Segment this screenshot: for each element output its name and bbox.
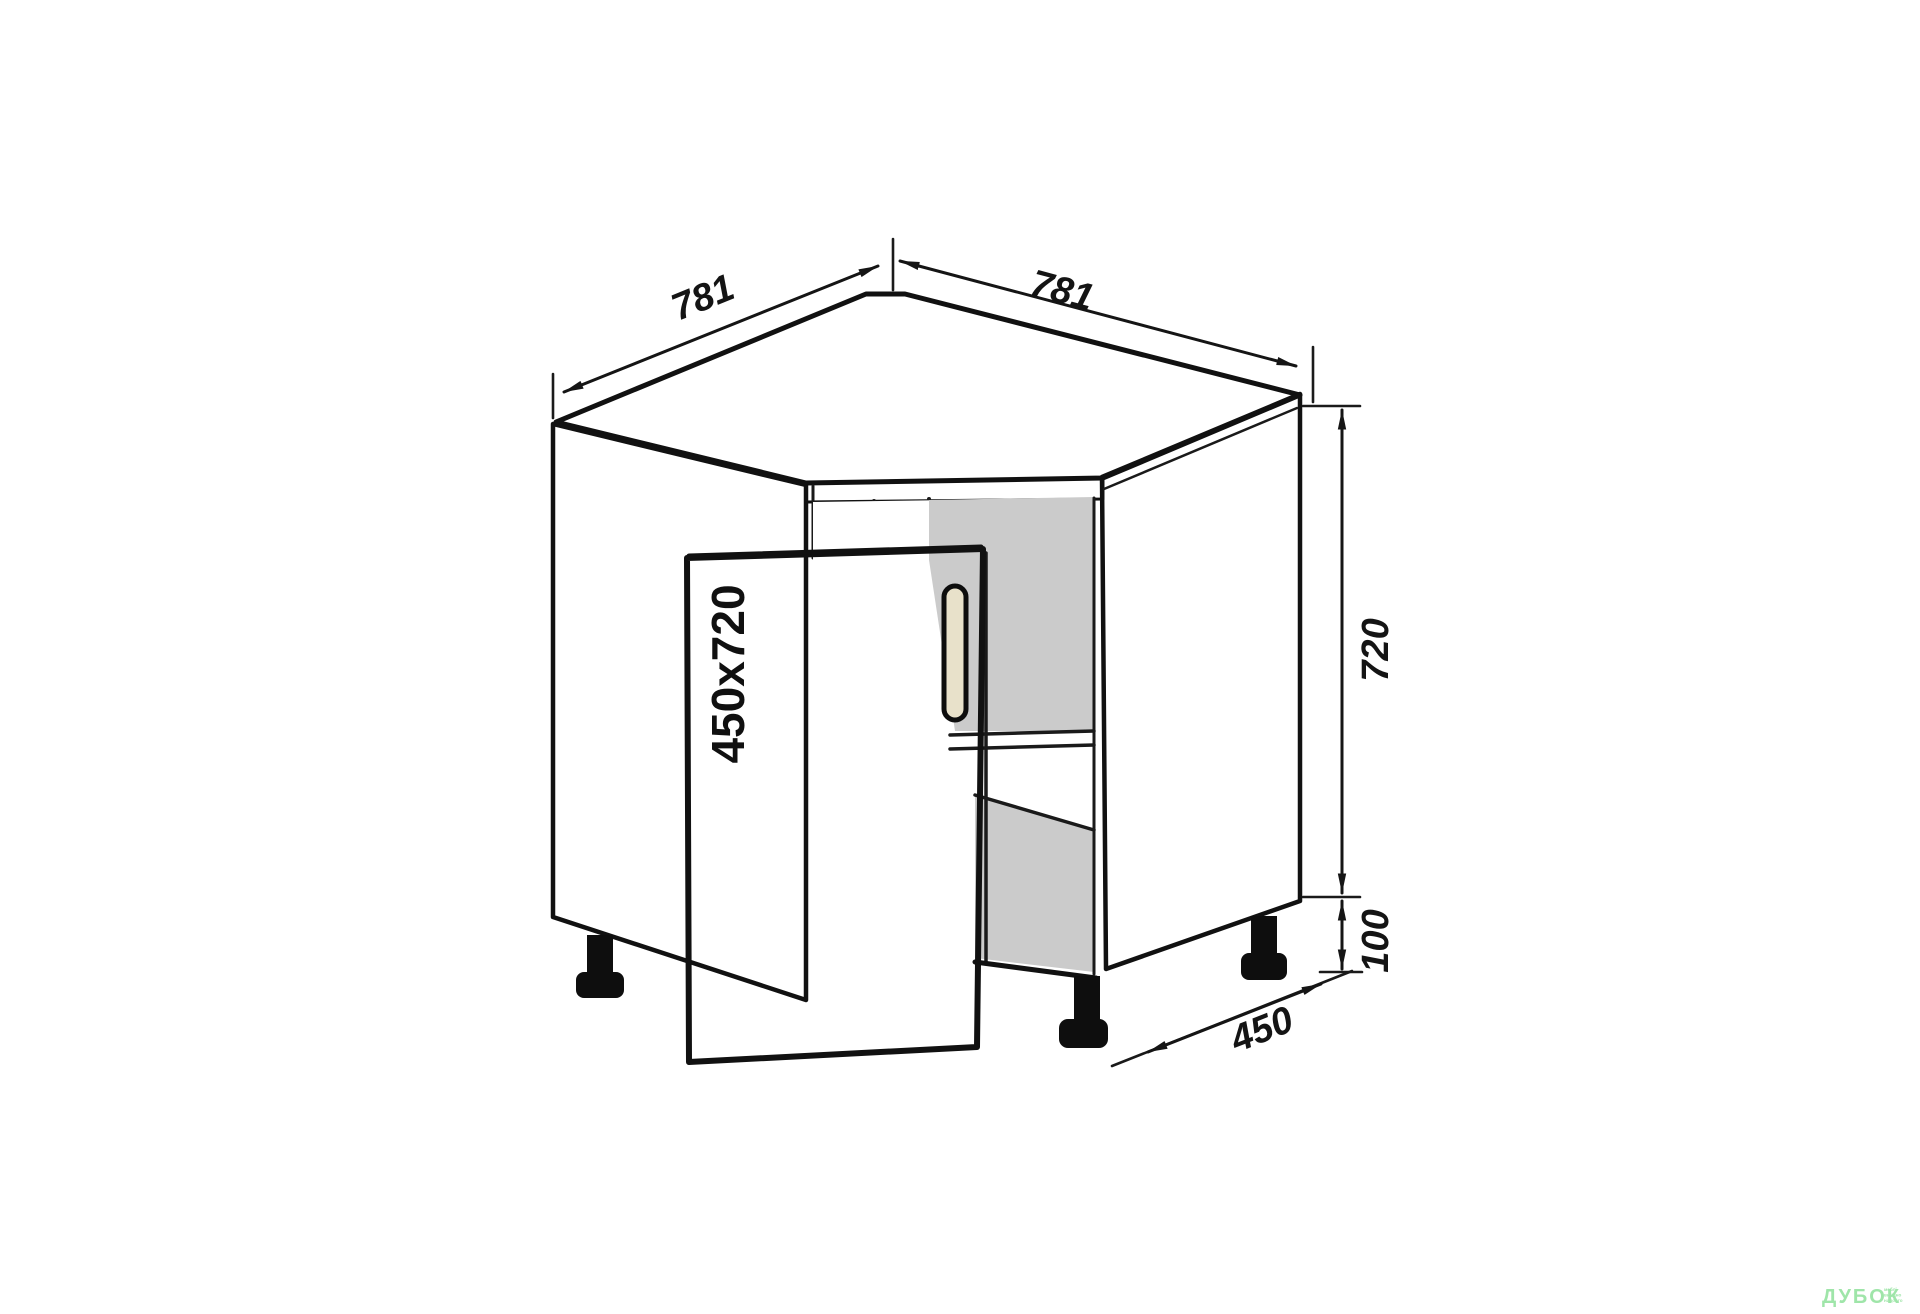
right-leg-foot	[1241, 953, 1287, 980]
watermark: ДУБОК меблі вигідно надовго	[1822, 1286, 1903, 1308]
dim-label-top-right-781: 781	[1026, 263, 1098, 320]
door-handle	[944, 586, 966, 720]
right-panel-top-inner-line	[1104, 408, 1297, 489]
left-leg-foot	[576, 972, 624, 998]
cabinet-drawing: 450x720	[553, 294, 1300, 1062]
watermark-tagline-line2: вигідно	[1884, 1293, 1902, 1298]
dim-label-depth-450: 450	[1224, 999, 1299, 1062]
dim-label-top-left-781: 781	[666, 267, 741, 330]
door-size-label: 450x720	[702, 584, 754, 763]
watermark-tagline-line3: надовго	[1884, 1298, 1903, 1303]
watermark-tagline-line1: меблі	[1884, 1286, 1897, 1292]
dim-line-top-right-781	[900, 261, 1296, 366]
left-leg-stem	[587, 935, 613, 975]
diagram-canvas: 450x720 781 781 720 100 450	[0, 0, 1920, 1314]
front-leg-foot	[1059, 1019, 1108, 1048]
cabinet-right-side-panel	[1102, 394, 1300, 969]
front-leg-stem	[1074, 976, 1100, 1022]
dim-label-height-720: 720	[1355, 618, 1397, 681]
cabinet-left-side-panel	[553, 424, 806, 1000]
right-leg-stem	[1251, 916, 1277, 958]
dim-label-legs-100: 100	[1355, 909, 1397, 972]
